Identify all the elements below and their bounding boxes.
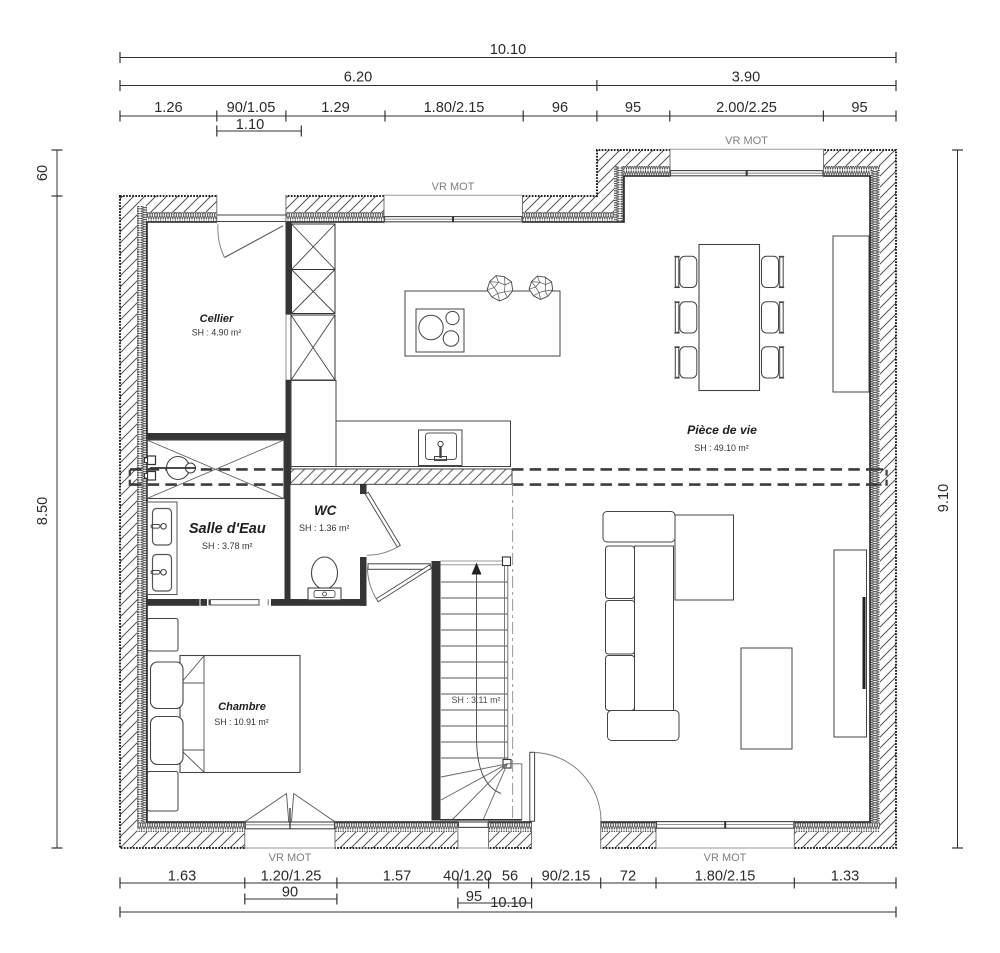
svg-text:1.80/2.15: 1.80/2.15: [424, 100, 485, 116]
svg-text:56: 56: [502, 869, 518, 885]
svg-text:8.50: 8.50: [35, 497, 51, 525]
svg-text:1.80/2.15: 1.80/2.15: [695, 869, 756, 885]
svg-text:1.20/1.25: 1.20/1.25: [261, 869, 322, 885]
svg-text:VR MOT: VR MOT: [704, 852, 747, 864]
svg-text:60: 60: [35, 165, 51, 181]
svg-text:10.10: 10.10: [490, 895, 527, 911]
svg-text:95: 95: [625, 100, 641, 116]
svg-text:6.20: 6.20: [344, 70, 372, 86]
svg-text:SH : 3.78 m²: SH : 3.78 m²: [202, 541, 253, 551]
svg-text:SH : 4.90 m²: SH : 4.90 m²: [192, 328, 241, 338]
svg-text:1.63: 1.63: [168, 869, 196, 885]
svg-text:SH : 3.11 m²: SH : 3.11 m²: [452, 695, 501, 705]
svg-text:Salle d'Eau: Salle d'Eau: [189, 521, 266, 537]
svg-text:WC: WC: [314, 503, 337, 518]
svg-text:Pièce de vie: Pièce de vie: [687, 423, 757, 437]
svg-text:40/1.20: 40/1.20: [443, 869, 492, 885]
svg-text:VR MOT: VR MOT: [725, 135, 768, 147]
svg-text:9.10: 9.10: [936, 484, 952, 512]
svg-text:SH : 49.10 m²: SH : 49.10 m²: [694, 443, 748, 453]
svg-text:96: 96: [552, 100, 568, 116]
svg-text:Cellier: Cellier: [200, 313, 234, 325]
svg-text:VR MOT: VR MOT: [432, 181, 475, 193]
svg-text:95: 95: [851, 100, 867, 116]
svg-text:90: 90: [282, 885, 298, 901]
svg-text:1.57: 1.57: [383, 869, 411, 885]
svg-text:90/1.05: 90/1.05: [227, 100, 276, 116]
svg-text:1.29: 1.29: [321, 100, 349, 116]
svg-text:10.10: 10.10: [490, 42, 527, 58]
svg-text:1.33: 1.33: [831, 869, 859, 885]
svg-text:Chambre: Chambre: [218, 701, 266, 713]
svg-text:SH : 1.36 m²: SH : 1.36 m²: [299, 523, 350, 533]
svg-text:SH : 10.91 m²: SH : 10.91 m²: [214, 717, 268, 727]
svg-text:3.90: 3.90: [732, 70, 760, 86]
svg-text:1.26: 1.26: [154, 100, 182, 116]
svg-text:72: 72: [620, 869, 636, 885]
svg-text:95: 95: [466, 889, 482, 905]
svg-text:VR MOT: VR MOT: [269, 852, 312, 864]
svg-text:90/2.15: 90/2.15: [542, 869, 591, 885]
svg-text:2.00/2.25: 2.00/2.25: [716, 100, 777, 116]
svg-text:1.10: 1.10: [236, 117, 264, 133]
